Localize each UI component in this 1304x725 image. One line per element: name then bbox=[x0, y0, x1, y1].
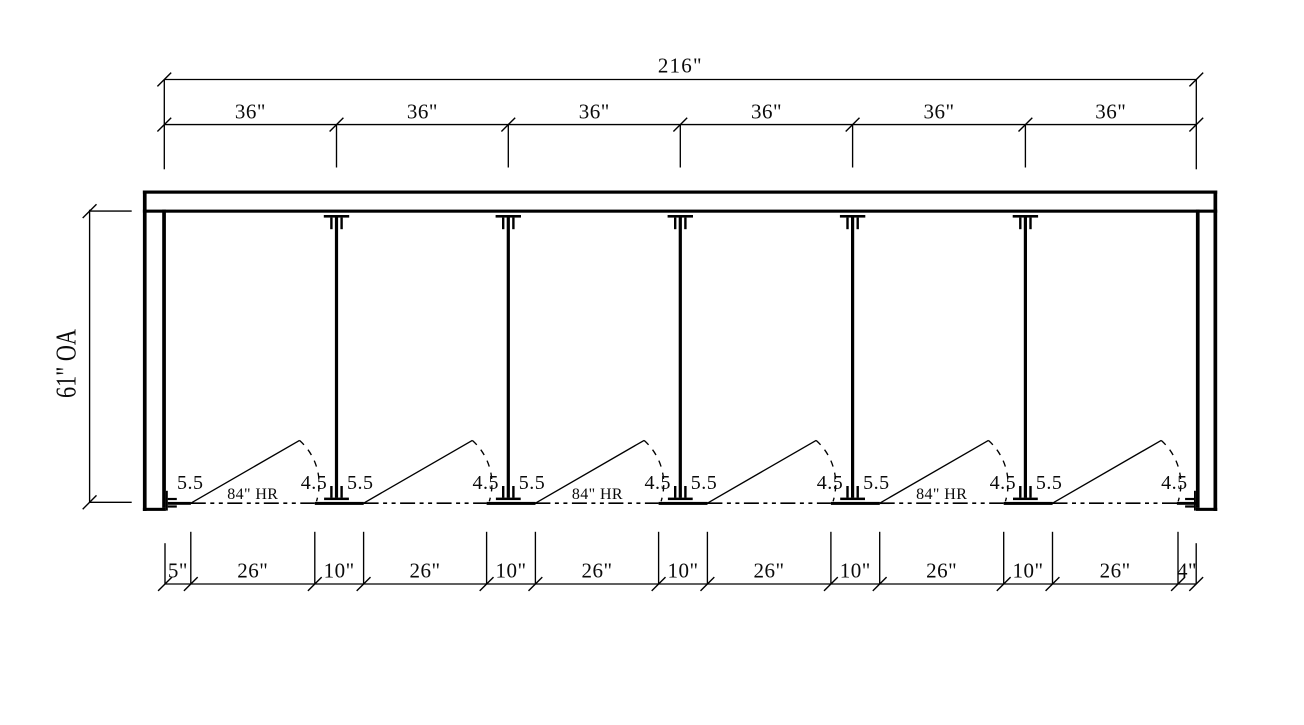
svg-text:36": 36" bbox=[923, 100, 954, 124]
svg-text:4.5: 4.5 bbox=[473, 472, 500, 494]
svg-text:10": 10" bbox=[1013, 558, 1044, 582]
svg-text:10": 10" bbox=[840, 558, 871, 582]
svg-text:36": 36" bbox=[751, 100, 782, 124]
svg-text:10": 10" bbox=[495, 558, 526, 582]
svg-text:5.5: 5.5 bbox=[519, 472, 546, 494]
svg-text:4.5: 4.5 bbox=[990, 472, 1017, 494]
svg-text:5.5: 5.5 bbox=[1036, 472, 1063, 494]
svg-text:26": 26" bbox=[754, 558, 785, 582]
svg-text:26": 26" bbox=[237, 558, 268, 582]
svg-text:84" HR: 84" HR bbox=[916, 486, 967, 503]
svg-text:26": 26" bbox=[410, 558, 441, 582]
svg-text:5.5: 5.5 bbox=[863, 472, 890, 494]
svg-text:26": 26" bbox=[926, 558, 957, 582]
svg-text:5.5: 5.5 bbox=[691, 472, 718, 494]
svg-text:36": 36" bbox=[1095, 100, 1126, 124]
svg-text:5": 5" bbox=[168, 558, 188, 582]
svg-text:4.5: 4.5 bbox=[645, 472, 672, 494]
svg-text:10": 10" bbox=[324, 558, 355, 582]
svg-text:26": 26" bbox=[1100, 558, 1131, 582]
svg-text:36": 36" bbox=[579, 100, 610, 124]
svg-text:84" HR: 84" HR bbox=[572, 486, 623, 503]
svg-text:4.5: 4.5 bbox=[301, 472, 328, 494]
svg-text:216": 216" bbox=[658, 54, 703, 78]
svg-text:5.5: 5.5 bbox=[177, 472, 204, 494]
svg-text:61" OA: 61" OA bbox=[52, 328, 83, 398]
svg-text:26": 26" bbox=[581, 558, 612, 582]
svg-text:36": 36" bbox=[235, 100, 266, 124]
svg-text:4.5: 4.5 bbox=[1161, 472, 1188, 494]
svg-text:10": 10" bbox=[667, 558, 698, 582]
svg-text:4": 4" bbox=[1177, 558, 1197, 582]
svg-text:5.5: 5.5 bbox=[347, 472, 374, 494]
svg-text:36": 36" bbox=[407, 100, 438, 124]
svg-text:4.5: 4.5 bbox=[817, 472, 844, 494]
svg-text:84" HR: 84" HR bbox=[227, 486, 278, 503]
